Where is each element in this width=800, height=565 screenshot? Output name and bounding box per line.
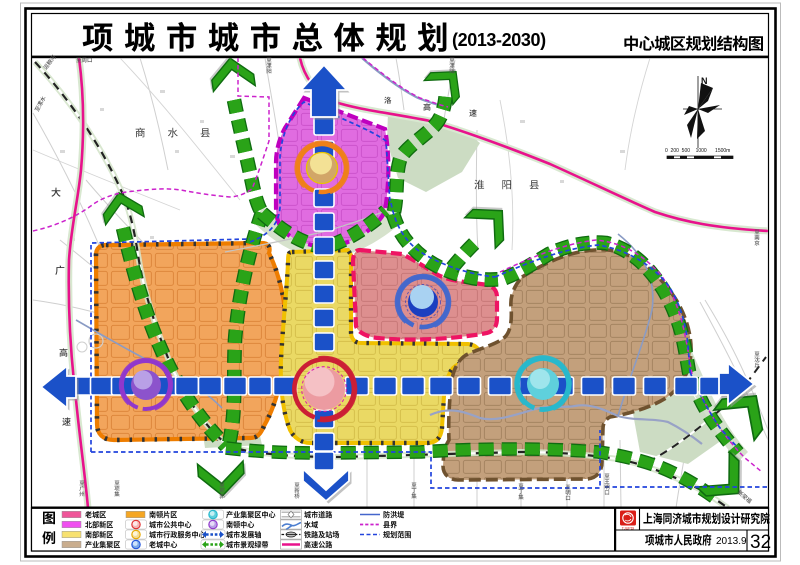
- svg-text:32: 32: [750, 532, 771, 553]
- svg-text:TJUPDI: TJUPDI: [622, 527, 635, 531]
- svg-text:2013.9: 2013.9: [716, 536, 747, 547]
- svg-text:N: N: [701, 76, 708, 86]
- svg-text:0 200 500 1000 1500m: 0 200 500 1000 1500m: [665, 148, 730, 154]
- svg-text:(2013-2030): (2013-2030): [452, 30, 546, 50]
